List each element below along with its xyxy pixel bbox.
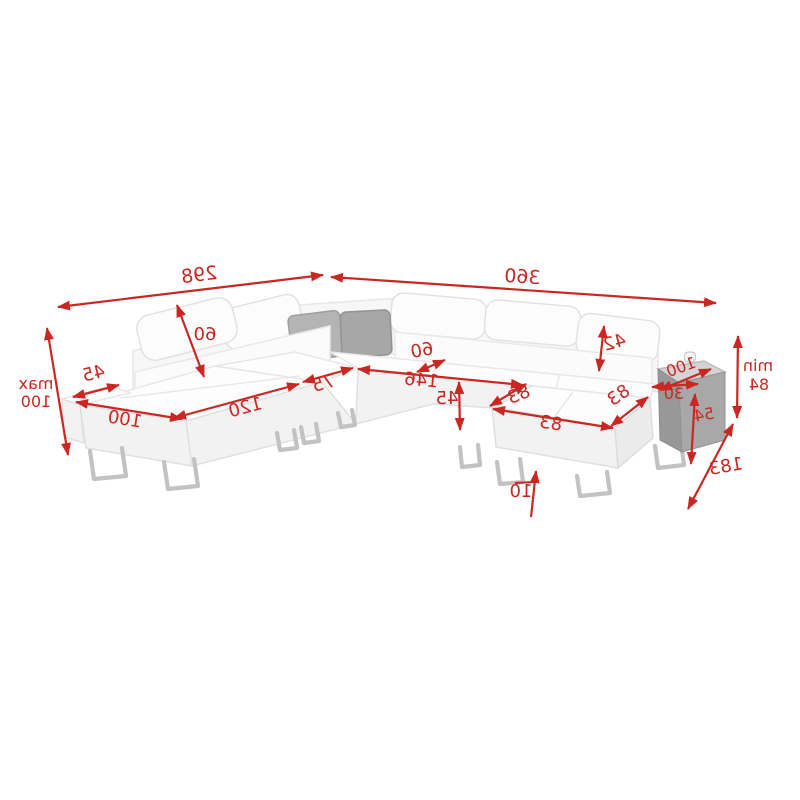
sofa-dimension-diagram: 298 360 max 100 45 100 120 60 75 60 146 … — [0, 0, 800, 800]
dim-label-total-width-right: 360 — [504, 265, 542, 289]
dim-label-ottoman-front: 83 — [538, 411, 564, 435]
dim-label-min-height-prefix: min — [743, 356, 773, 375]
dim-label-max-height-value: 100 — [21, 392, 52, 411]
dim-line-min-height — [737, 336, 738, 418]
dim-label-total-depth: 183 — [707, 453, 744, 480]
diagram-svg: 298 360 max 100 45 100 120 60 75 60 146 … — [0, 0, 800, 800]
dim-label-headrest-diagonal: 60 — [194, 324, 217, 345]
dim-label-armrest-width: 45 — [80, 361, 107, 387]
corner-pillow — [340, 310, 392, 358]
dim-label-seat-height: 45 — [436, 388, 459, 409]
dim-label-floor-clearance: 10 — [510, 481, 533, 502]
dim-label-table-height: 54 — [692, 403, 715, 425]
dim-label-bed-length: 146 — [403, 369, 439, 393]
sofa-leg — [460, 445, 480, 467]
sofa-leg — [90, 448, 126, 479]
dim-label-max-height-prefix: max — [19, 374, 54, 393]
dim-label-table-width: 30 — [664, 384, 684, 403]
dim-label-seat-offset: 60 — [409, 338, 435, 363]
dim-label-total-width-left: 298 — [180, 262, 219, 288]
dim-label-min-height-value: 84 — [749, 375, 769, 394]
sofa-leg — [577, 472, 610, 496]
headrest-cushion — [483, 299, 581, 347]
